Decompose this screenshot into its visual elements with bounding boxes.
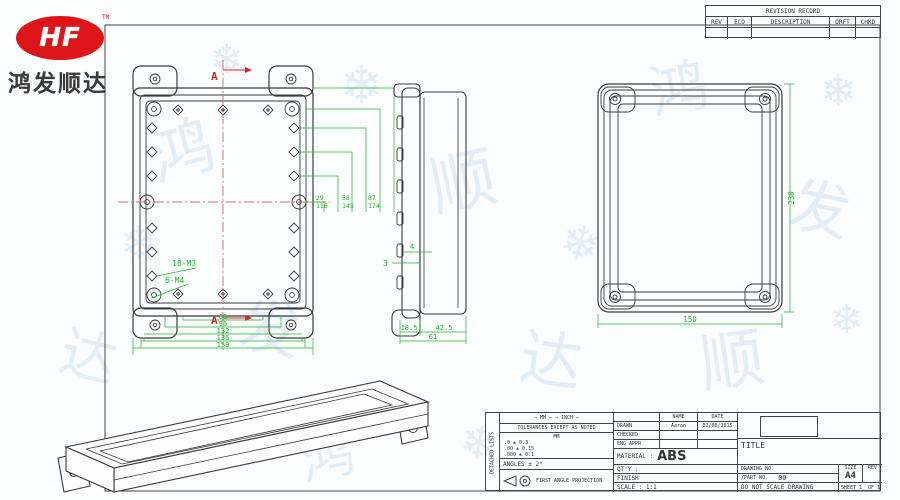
date-header: DATE [698, 413, 738, 422]
finish-row: FINISH [614, 474, 738, 483]
lid-width-dim: 150 [683, 315, 697, 324]
projection-cell: FIRST ANGLE PROJECTION [500, 470, 614, 492]
size-value: A4 [839, 471, 862, 481]
drawing-sheet: 鸿发顺达鸿发顺达❄❄❄❄❄❄鸿❄ [0, 0, 900, 500]
scale-row: SCALE : 1:1 [614, 483, 738, 492]
material-value: ABS [657, 449, 686, 464]
part-no-row: /PART NO. 00 [738, 474, 839, 483]
drawing-no-label: DRAWING NO. [738, 465, 839, 474]
revision-empty-row [706, 28, 880, 39]
section-label-bottom: A [211, 314, 218, 327]
tolerance-table: MM .0 ± 0.3 .00 ± 0.15 .000 ± 0.1 [500, 433, 614, 459]
tol-row-3: .000 ± 0.1 [504, 452, 609, 458]
drft-col-header: DRFT [830, 17, 856, 28]
svg-text:87: 87 [368, 194, 376, 202]
svg-text:116: 116 [316, 202, 328, 210]
title-cell: TITLE [738, 439, 882, 465]
tolerance-heading: TOLERANCES EXCEPT AS NOTED [500, 424, 614, 433]
revision-table-title: REVISION RECORD [706, 6, 880, 17]
rev-label: REV [863, 465, 882, 471]
drawn-name: Aaron [660, 422, 698, 431]
first-angle-cone-icon [502, 474, 532, 488]
section-markers: A A [211, 67, 252, 327]
logo-ellipse: HF [16, 16, 104, 60]
chkd-col-header: CHKD [856, 17, 880, 28]
drawn-date: 02/06/2015 [698, 422, 738, 431]
eng-appr-label: ENG APPR [614, 440, 660, 449]
rev-col-header: REV [706, 17, 728, 28]
svg-text:174: 174 [368, 202, 380, 210]
description-col-header: DESCRIPTION [752, 17, 830, 28]
part-no-label: /PART NO. [741, 475, 768, 481]
svg-text:42.5: 42.5 [436, 324, 453, 332]
section-label-top: A [211, 70, 218, 83]
projection-label: FIRST ANGLE PROJECTION [536, 478, 602, 484]
title-label: TITLE [741, 441, 765, 450]
size-cell: SIZE A4 [839, 465, 863, 483]
eco-col-header: ECO [728, 17, 752, 28]
trademark-mark: TM [102, 14, 109, 21]
isometric-view [58, 381, 428, 492]
material-label: MATERIAL : [617, 453, 653, 460]
rib-dim: 4 [410, 243, 414, 251]
revision-record-table: REVISION RECORD REV ECO DESCRIPTION DRFT… [705, 5, 881, 38]
drawn-label: DRAWN [614, 422, 660, 431]
do-not-scale-note: DO NOT SCALE DRAWING [738, 483, 839, 492]
angles-row: ANGLES ± 2° [500, 459, 614, 470]
side-dimensions: 3 4 18.5 42.5 61 [383, 243, 466, 344]
lid-height-dim: 230 [787, 191, 796, 205]
qty-row: QT'Y : [614, 465, 738, 474]
svg-text:150: 150 [217, 341, 230, 349]
lid-view [598, 84, 782, 312]
svg-text:61: 61 [429, 333, 437, 341]
rev-cell: REV [863, 465, 882, 483]
svg-text:18.5: 18.5 [401, 324, 418, 332]
logo-monogram: HF [39, 23, 81, 53]
title-block: DETACHED LISTS → MM ← → INCH ← TOLERANCE… [485, 412, 881, 491]
side-view [392, 84, 466, 336]
material-row: MATERIAL : ABS [614, 449, 738, 465]
company-logo: HF TM 鸿发顺达 [6, 14, 116, 94]
sheet-cell: SHEET 1 OF 1 [839, 483, 882, 492]
company-name: 鸿发顺达 [8, 64, 108, 98]
svg-text:29: 29 [316, 194, 324, 202]
logo-placeholder-box [760, 416, 818, 437]
label-6-M4: 6-M4 [165, 276, 184, 285]
part-no-value: 00 [778, 474, 786, 482]
sheet-of: OF 1 [868, 485, 880, 491]
svg-text:58: 58 [342, 194, 350, 202]
side-label: DETACHED LISTS [486, 413, 499, 492]
sheet-number: SHEET 1 [841, 485, 862, 491]
checked-label: CHECKED [614, 431, 660, 440]
units-row: → MM ← → INCH ← [500, 413, 614, 424]
plan-dimensions: 29 58 87 116 145 174 66 96 132 136 [133, 88, 394, 355]
label-18-M3: 18-M3 [172, 259, 196, 268]
svg-text:145: 145 [342, 202, 354, 210]
wall-thickness-dim: 3 [383, 259, 388, 268]
name-header: NAME [660, 413, 698, 422]
